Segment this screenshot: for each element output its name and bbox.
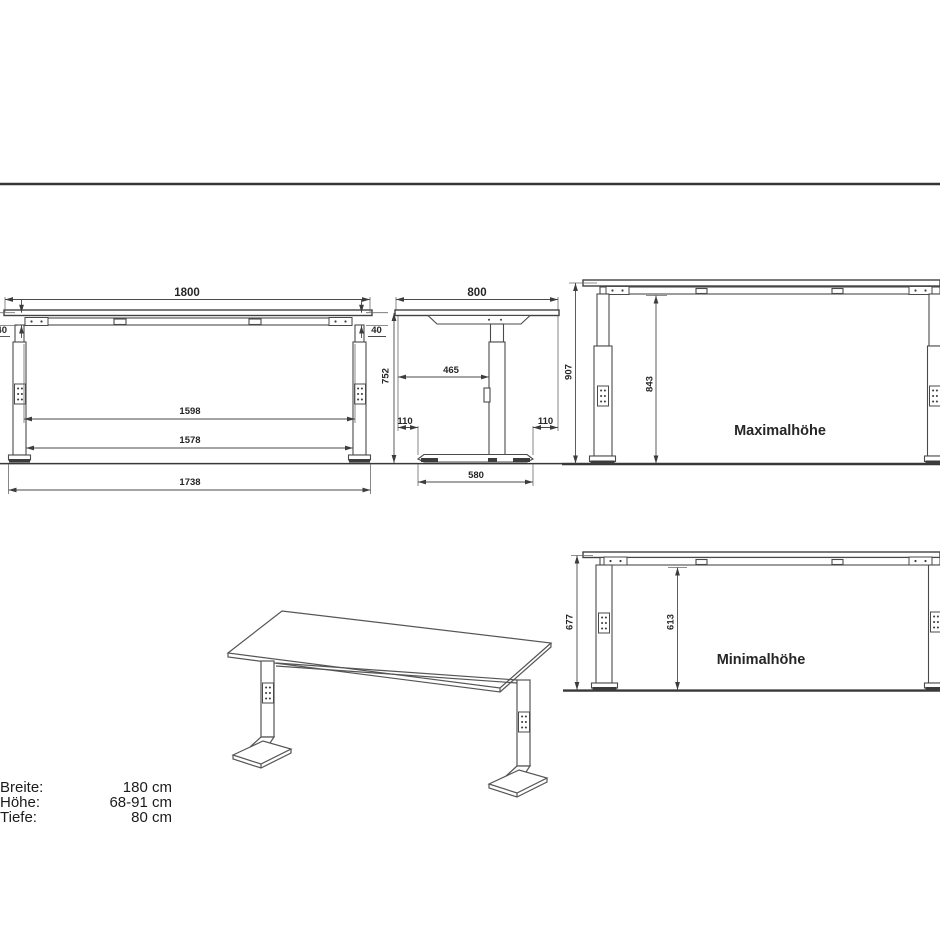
dim-label-677: 677 (564, 614, 575, 630)
dim-base-580: 580 (418, 464, 533, 486)
mount-bracket-icon (909, 557, 932, 565)
front-right-leg (349, 325, 371, 463)
dim-depth-800: 800 (396, 287, 558, 310)
dim-label-1738: 1738 (179, 477, 200, 488)
spec-value-breite: 180 cm (123, 780, 172, 795)
cable-clip (484, 388, 490, 402)
side-mount-plate (428, 316, 530, 325)
dim-label-465: 465 (443, 365, 460, 376)
dim-feet-1738: 1738 (9, 464, 371, 494)
min-height-view: 677 613 Minimalhöhe (564, 552, 940, 690)
rail-clip (696, 289, 707, 294)
rail-clip (832, 560, 843, 565)
dim-label-110-left: 110 (397, 416, 412, 427)
max-height-caption: Maximalhöhe (734, 423, 826, 439)
dim-label-110-right: 110 (538, 416, 553, 427)
max-right-leg (925, 294, 940, 464)
front-left-leg (9, 325, 31, 463)
max-height-view: 907 843 Maximalhöhe (563, 280, 940, 464)
control-box-icon (355, 384, 366, 404)
front-rail (25, 318, 352, 325)
dimensions-summary: Breite: 180 cm Höhe: 68-91 cm Tiefe: 80 … (0, 780, 172, 825)
dim-clear-613: 613 (665, 568, 687, 691)
dim-label-907: 907 (563, 364, 574, 380)
spec-label-breite: Breite: (0, 780, 43, 795)
dim-label-752: 752 (380, 368, 391, 384)
control-box-icon (263, 683, 274, 703)
min-right-leg (925, 565, 940, 690)
dim-total-907: 907 (563, 283, 597, 464)
min-left-leg (592, 565, 618, 690)
dim-label-40-left: 40 (0, 325, 7, 336)
mount-bracket-icon (606, 287, 629, 295)
perspective-view (228, 611, 551, 797)
dim-overhang-right-110: 110 (533, 316, 558, 455)
side-base-plate (418, 455, 533, 463)
dim-thickness-right-40: 40 (362, 300, 389, 338)
side-column (484, 324, 505, 455)
mount-bracket-icon (25, 318, 48, 326)
rail-clip (249, 319, 261, 325)
rail-clip (696, 560, 707, 565)
spec-row-tiefe: Tiefe: 80 cm (0, 810, 172, 825)
dim-label-580: 580 (468, 470, 484, 481)
dim-clear-843: 843 (644, 296, 667, 464)
control-box-icon (930, 386, 940, 406)
dim-label-1800: 1800 (174, 287, 200, 299)
dim-inner-1578: 1578 (26, 435, 353, 448)
control-box-icon (598, 386, 609, 406)
dim-total-677: 677 (564, 556, 593, 691)
dim-label-613: 613 (665, 614, 676, 630)
max-tabletop (583, 280, 940, 286)
min-tabletop (583, 552, 940, 558)
mount-bracket-icon (329, 318, 352, 326)
min-rail (600, 558, 940, 566)
side-view: 800 465 110 (395, 287, 559, 486)
dim-label-800: 800 (467, 287, 486, 299)
dim-inner-1598: 1598 (24, 344, 355, 423)
persp-tabletop (228, 611, 551, 688)
spec-row-breite: Breite: 180 cm (0, 780, 172, 795)
spec-label-tiefe: Tiefe: (0, 810, 37, 825)
control-box-icon (519, 712, 530, 732)
side-tabletop (395, 310, 559, 316)
persp-right-leg (489, 680, 547, 797)
screw-dot (500, 319, 502, 321)
dim-label-1598: 1598 (179, 406, 200, 417)
dim-height-752: 752 (380, 313, 394, 463)
spec-value-hoehe: 68-91 cm (109, 795, 172, 810)
min-height-caption: Minimalhöhe (717, 652, 806, 668)
persp-left-leg (233, 661, 291, 768)
mount-bracket-icon (604, 557, 627, 565)
dim-label-40-right: 40 (371, 325, 382, 336)
screw-dot (488, 319, 490, 321)
dim-width-1800: 1800 (5, 287, 370, 312)
rail-clip (114, 319, 126, 325)
max-rail (600, 287, 940, 294)
spec-row-hoehe: Höhe: 68-91 cm (0, 795, 172, 810)
dim-label-1578: 1578 (179, 435, 200, 446)
max-left-leg (590, 294, 616, 464)
front-tabletop (4, 310, 372, 316)
rail-clip (832, 289, 843, 294)
control-box-icon (931, 612, 940, 632)
control-box-icon (599, 613, 610, 633)
dim-overhang-left-110: 110 (397, 416, 418, 455)
spec-value-tiefe: 80 cm (131, 810, 172, 825)
spec-label-hoehe: Höhe: (0, 795, 40, 810)
dim-label-843: 843 (644, 376, 655, 392)
mount-bracket-icon (909, 287, 932, 295)
dim-offset-465: 465 (398, 316, 489, 431)
technical-drawing-page: 1800 40 40 752 1598 (0, 0, 940, 940)
